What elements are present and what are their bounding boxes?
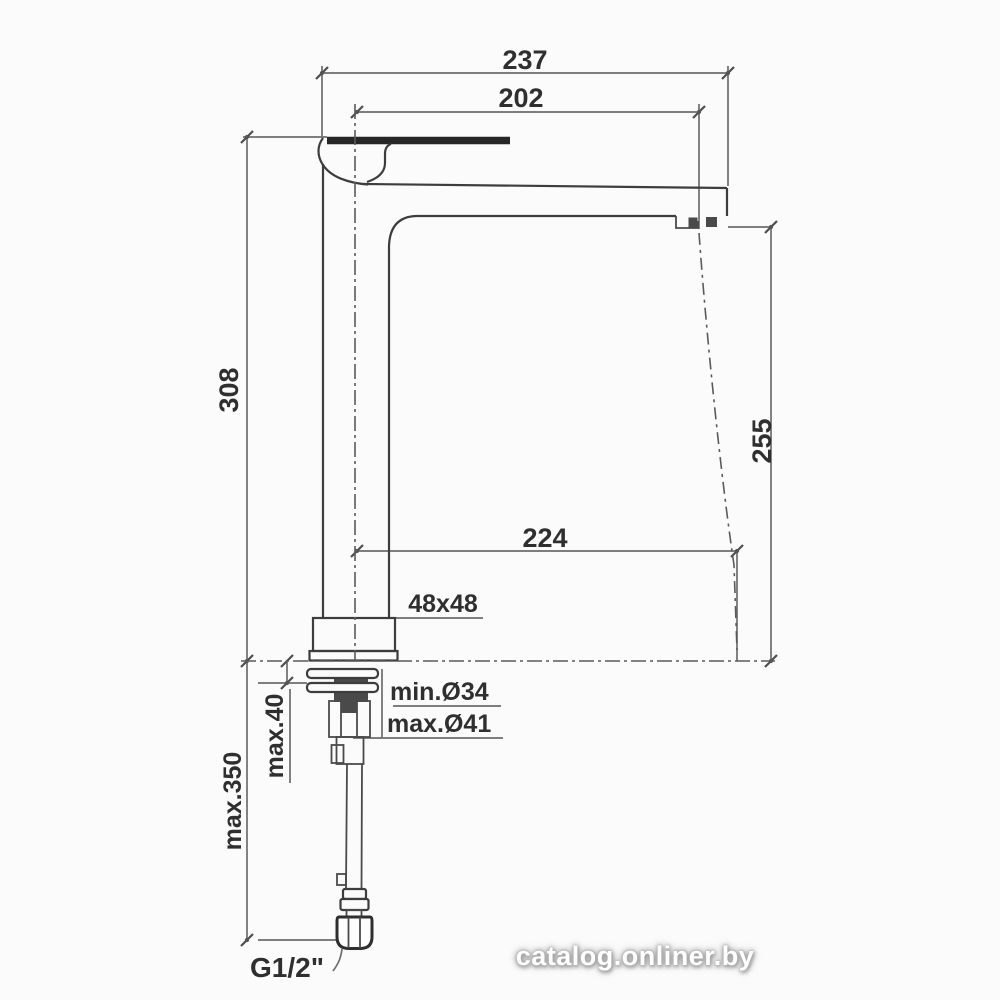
dimension-label-max-40: max.40 xyxy=(261,686,289,786)
connector-ring-2 xyxy=(341,899,369,910)
handle-neck xyxy=(367,144,391,182)
hex-connection-nut xyxy=(337,917,372,949)
handle-back-edge xyxy=(319,138,369,185)
dimension-label-202: 202 xyxy=(476,84,566,112)
dimension-label-308: 308 xyxy=(215,345,243,435)
dimension-label-237: 237 xyxy=(480,46,570,74)
spout-top-edge xyxy=(364,184,727,188)
washer-bottom xyxy=(307,683,378,692)
mounting-hardware xyxy=(307,669,378,949)
spout-bottom-and-body-right xyxy=(389,216,676,618)
dimension-ticks xyxy=(241,67,777,946)
faucet-outline xyxy=(310,138,728,661)
water-stream-line xyxy=(699,233,737,650)
base-flange xyxy=(313,618,395,651)
dimension-label-max-350: max.350 xyxy=(219,746,247,856)
technical-drawing-canvas: 237 202 308 255 224 48x48 min.Ø34 max.Ø4… xyxy=(0,0,1000,1000)
dimension-label-255: 255 xyxy=(748,396,776,486)
washer-top xyxy=(307,669,378,678)
hose-tab xyxy=(337,874,346,885)
base-gasket xyxy=(310,651,398,661)
shank-tube xyxy=(337,737,364,764)
faucet-dimension-drawing xyxy=(0,0,1000,1000)
aerator-right-block xyxy=(706,217,717,227)
collar-shadow xyxy=(341,701,357,713)
watermark-text: catalog.onliner.by xyxy=(505,941,765,972)
leader-g12 xyxy=(333,949,342,971)
dimension-label-224: 224 xyxy=(500,524,590,552)
dimension-label-max-d41: max.Ø41 xyxy=(387,710,491,738)
flex-hose xyxy=(346,764,362,889)
connector-ring-1 xyxy=(343,889,366,899)
dimension-label-min-d34: min.Ø34 xyxy=(390,678,489,706)
aerator-left-block xyxy=(689,218,698,228)
shank-step xyxy=(332,745,344,763)
dimension-label-g12-thread: G1/2" xyxy=(250,954,324,982)
dimension-label-48x48: 48x48 xyxy=(398,590,488,618)
